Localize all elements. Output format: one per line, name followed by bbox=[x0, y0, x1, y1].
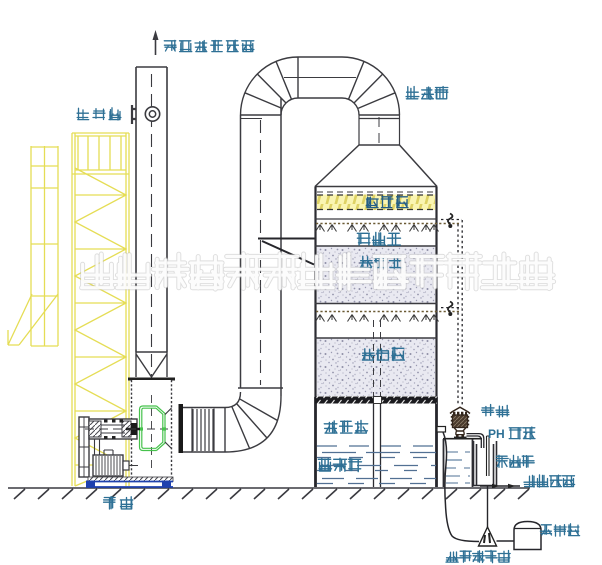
svg-text:PH: PH bbox=[488, 427, 505, 441]
